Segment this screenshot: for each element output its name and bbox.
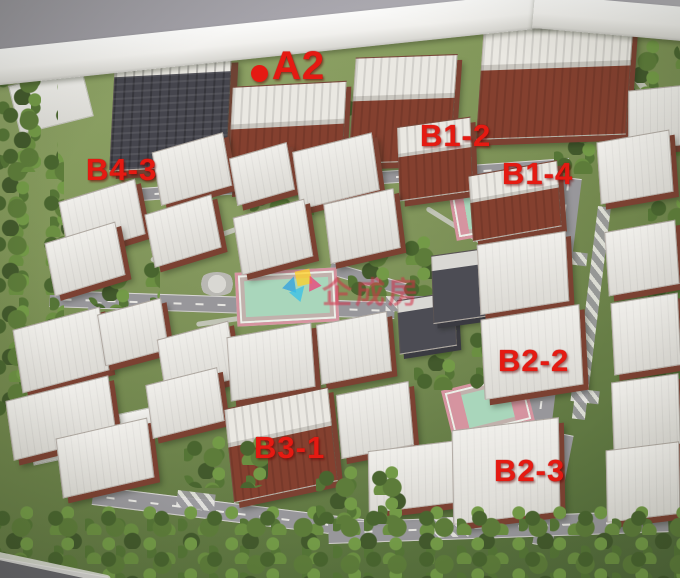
- label-b2-2: B2-2: [498, 345, 569, 376]
- label-b1-2: B1-2: [420, 120, 491, 151]
- building-block: [611, 293, 680, 376]
- building-block: [226, 322, 315, 401]
- label-b1-4: B1-4: [502, 158, 573, 189]
- building-block: [477, 231, 570, 315]
- label-b4-3: B4-3: [86, 154, 157, 185]
- building-block: [316, 311, 392, 385]
- label-b2-3: B2-3: [494, 455, 565, 486]
- label-a2: A2: [272, 46, 325, 86]
- model-photo-scene: 企成房 A2 B1-2 B1-4 B4-3 B2-2 B3-1 B2-3: [0, 0, 680, 578]
- a2-dot-marker: [251, 65, 268, 82]
- building-block: [233, 199, 314, 276]
- building-block: [144, 194, 221, 268]
- building-block: [611, 373, 680, 453]
- building-block: [145, 367, 224, 439]
- label-b3-1: B3-1: [254, 432, 325, 463]
- watermark-text: 企成房: [322, 268, 421, 312]
- tree-cluster: [316, 466, 408, 524]
- plaza-circle: [198, 272, 236, 296]
- building-block: [596, 129, 673, 204]
- building-block: [604, 220, 679, 297]
- building-block: [476, 17, 634, 140]
